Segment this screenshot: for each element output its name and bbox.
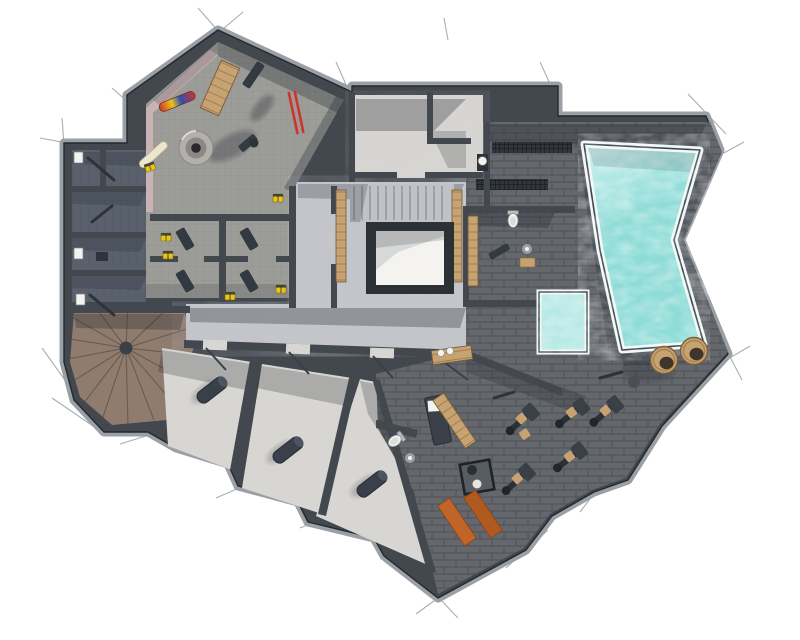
stair-centre-post [120, 342, 133, 355]
glass-stove-box [460, 460, 495, 495]
barrel-tub-1 [651, 347, 678, 374]
stool [250, 139, 259, 148]
boot-dryer [179, 131, 213, 165]
wooden-mat [520, 258, 535, 267]
wall-gauge [478, 157, 487, 166]
sauna-slat-bench [468, 216, 478, 286]
deck-drain [628, 376, 640, 388]
floor-plan-canvas [0, 0, 800, 640]
barrel-tub-2 [681, 338, 708, 365]
timber-slat-strip-left [336, 190, 346, 282]
floor-plan-drawing [0, 0, 800, 640]
floor-opening [366, 222, 454, 294]
plunge-pool [539, 292, 587, 352]
